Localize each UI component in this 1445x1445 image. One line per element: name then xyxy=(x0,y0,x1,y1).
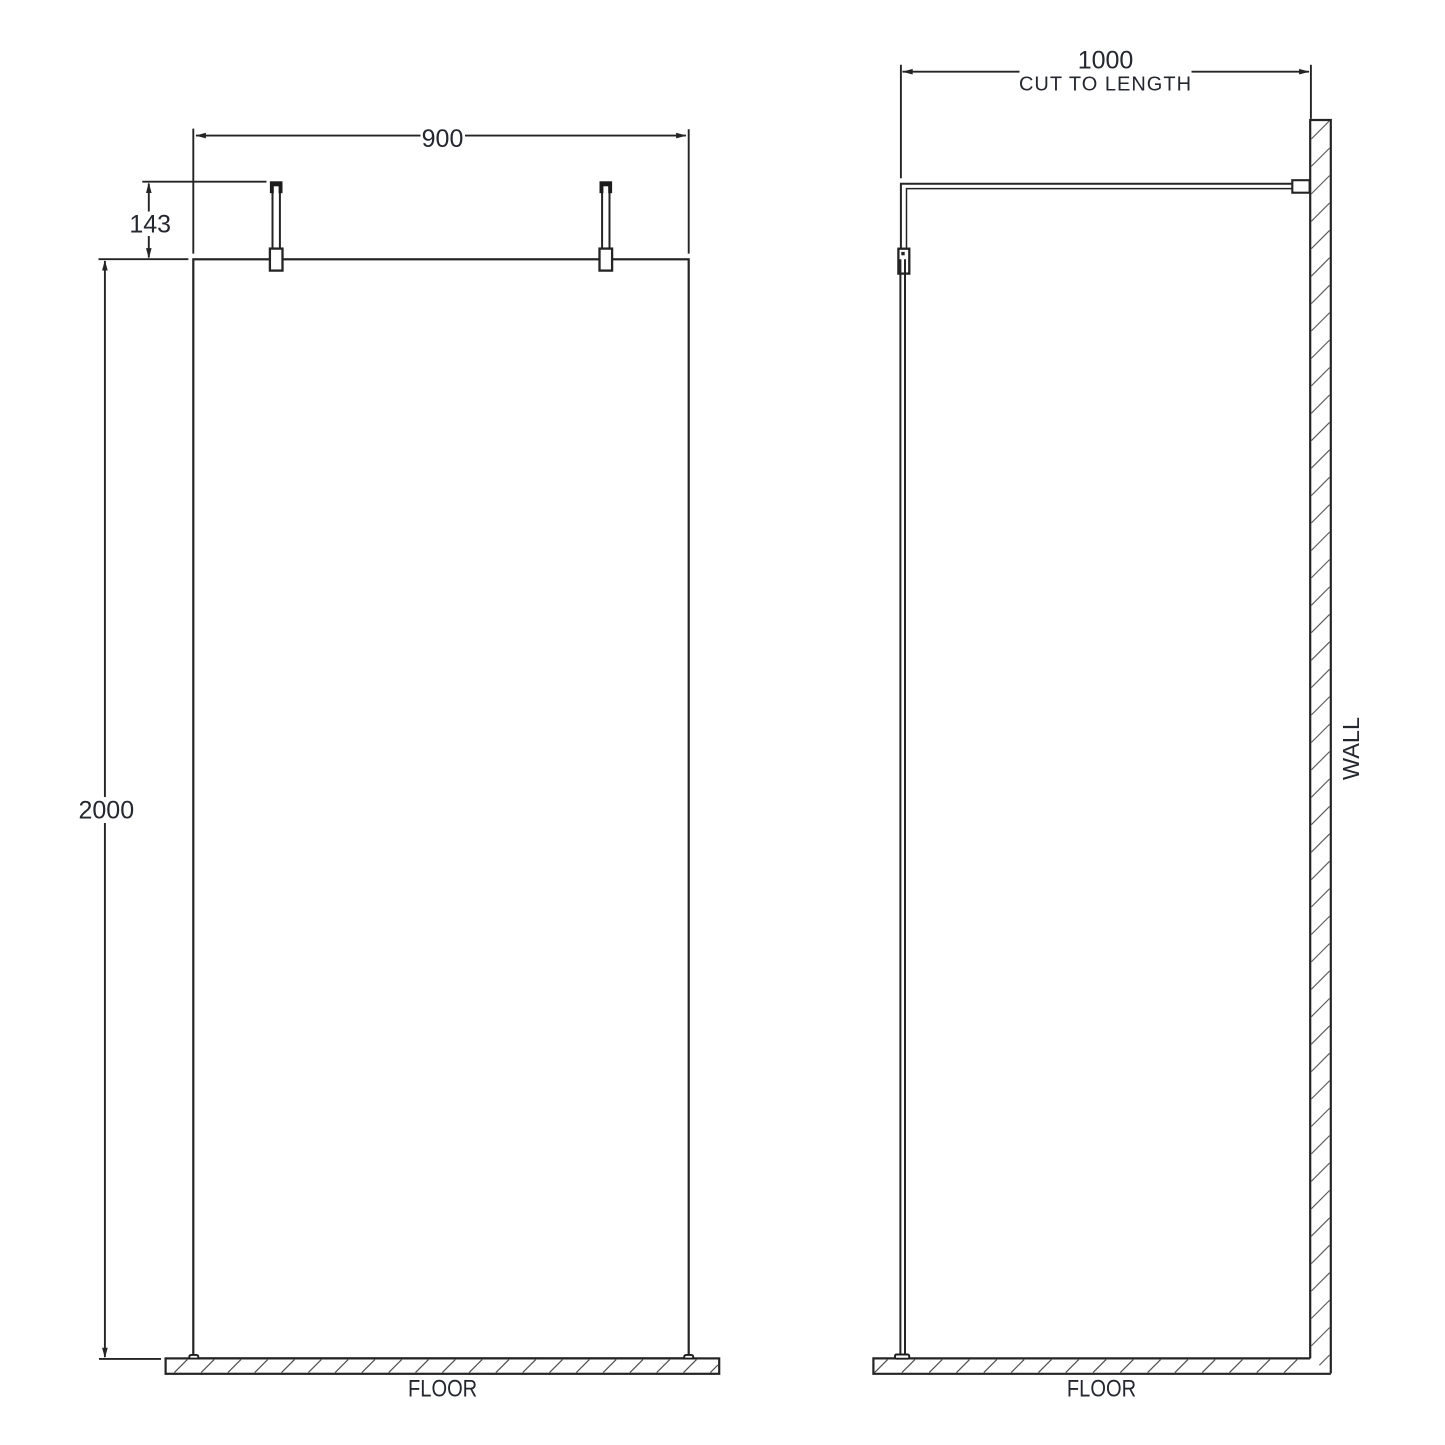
svg-text:2000: 2000 xyxy=(78,797,134,825)
svg-text:FLOOR: FLOOR xyxy=(408,1375,477,1402)
svg-text:143: 143 xyxy=(129,211,171,239)
svg-text:CUT TO LENGTH: CUT TO LENGTH xyxy=(1019,73,1192,95)
svg-text:1000: 1000 xyxy=(1078,46,1134,74)
svg-text:WALL: WALL xyxy=(1338,717,1364,780)
svg-text:FLOOR: FLOOR xyxy=(1067,1375,1136,1402)
svg-text:900: 900 xyxy=(422,125,464,153)
